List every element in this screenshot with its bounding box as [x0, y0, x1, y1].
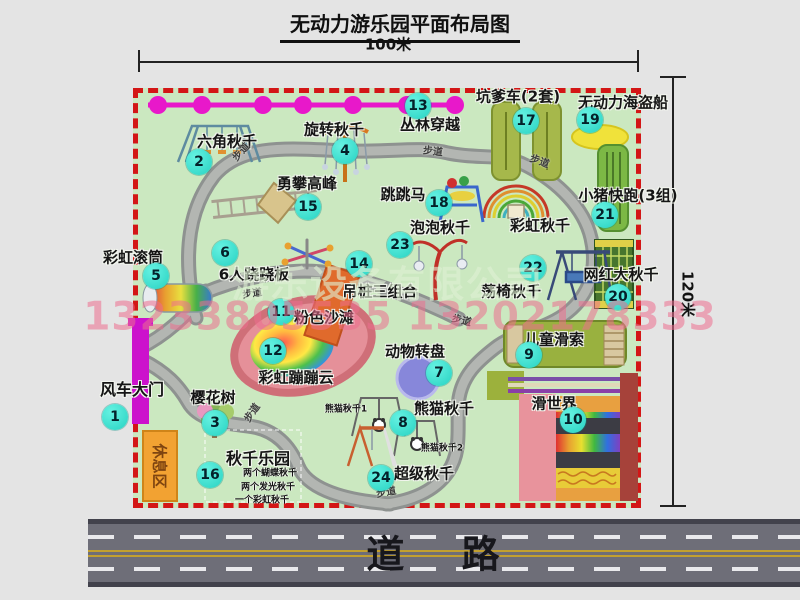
rainbow-swing-label: 彩虹秋千 — [510, 215, 570, 236]
attraction-20-label: 网红大秋千 — [583, 264, 658, 285]
attraction-8-label: 熊猫秋千 — [414, 398, 474, 419]
attraction-8-badge: 8 — [390, 410, 416, 436]
rest-area-box: 休息区 — [142, 430, 178, 502]
attraction-21-badge: 21 — [592, 202, 618, 228]
footpath-label-2: 步道 — [422, 141, 443, 158]
park-plan-page: 无动力游乐园平面布局图 100米 120米 — [0, 0, 800, 600]
attraction-12-label: 彩虹蹦蹦云 — [258, 367, 333, 388]
attraction-8-sub1: 熊猫秋千1 — [325, 402, 367, 415]
attraction-18-label: 跳跳马 — [380, 184, 425, 205]
attraction-8-sub2: 熊猫秋千2 — [421, 441, 463, 454]
attraction-16-sub1: 两个蝴蝶秋千 — [243, 466, 297, 479]
attraction-15-badge: 15 — [295, 194, 321, 220]
dimension-tick-right — [637, 50, 639, 72]
attraction-2-badge: 2 — [186, 149, 212, 175]
road: 道 路 — [88, 519, 800, 587]
attraction-18-badge: 18 — [426, 190, 452, 216]
attraction-3-label: 樱花树 — [190, 387, 235, 408]
road-label: 道 路 — [366, 523, 521, 578]
attraction-15-label: 勇攀高峰 — [277, 173, 337, 194]
attraction-4-badge: 4 — [332, 138, 358, 164]
attraction-19-badge: 19 — [577, 107, 603, 133]
attraction-17-badge: 17 — [513, 108, 539, 134]
attraction-10-badge: 10 — [560, 407, 586, 433]
attraction-23-label: 泡泡秋千 — [410, 217, 470, 238]
attraction-4-label: 旋转秋千 — [304, 119, 364, 140]
dimension-tick-top — [660, 76, 686, 78]
attraction-24-label: 超级秋千 — [394, 463, 454, 484]
attraction-7-label: 动物转盘 — [385, 341, 445, 362]
attraction-13-label: 丛林穿越 — [400, 114, 460, 135]
attraction-3-badge: 3 — [202, 410, 228, 436]
attraction-16-sub3: 一个彩虹秋千 — [235, 493, 289, 506]
attraction-13-badge: 13 — [405, 93, 431, 119]
attraction-12-badge: 12 — [260, 338, 286, 364]
dimension-line-vertical — [672, 77, 674, 507]
attraction-9-badge: 9 — [516, 342, 542, 368]
attraction-24-badge: 24 — [368, 465, 394, 491]
page-title: 无动力游乐园平面布局图 — [280, 8, 520, 43]
dimension-line-horizontal — [139, 61, 638, 63]
attraction-21-label: 小猪快跑(3组) — [578, 185, 677, 206]
attraction-17-label: 坑爹车(2套) — [476, 86, 560, 107]
dimension-tick-bottom — [660, 505, 686, 507]
rest-area-label: 休息区 — [150, 443, 171, 488]
attraction-7-badge: 7 — [426, 360, 452, 386]
attraction-5-badge: 5 — [143, 263, 169, 289]
attraction-1-label: 风车大门 — [100, 376, 164, 400]
attraction-16-badge: 16 — [197, 462, 223, 488]
dimension-tick-left — [138, 50, 140, 72]
attraction-16-sub2: 两个发光秋千 — [241, 480, 295, 493]
attraction-1-badge: 1 — [102, 404, 128, 430]
watermark-phone: 13233805535 13202178333 — [83, 295, 717, 340]
